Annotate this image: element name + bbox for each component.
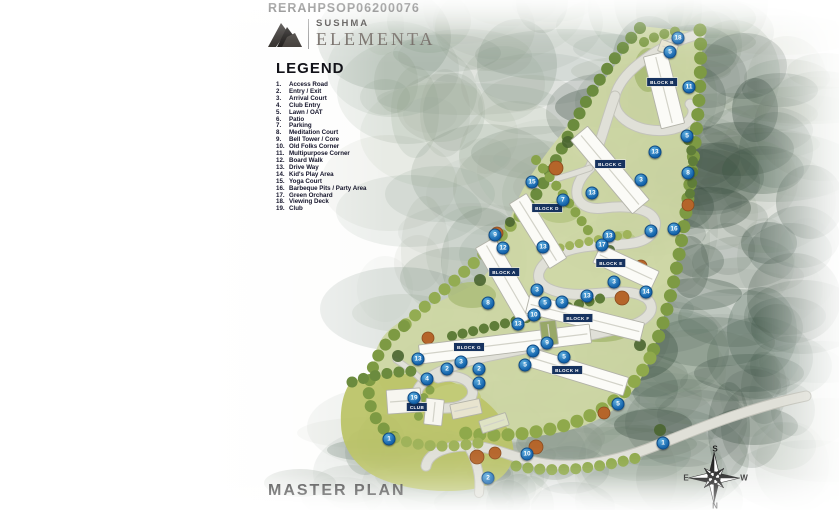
map-marker-5: 5 [539, 297, 552, 310]
block-label: BLOCK F [563, 314, 592, 322]
block-label: BLOCK B [647, 78, 677, 86]
map-marker-14: 14 [639, 286, 652, 299]
map-marker-10: 10 [528, 309, 541, 322]
compass-direction-right: W [740, 474, 748, 483]
map-marker-11: 11 [683, 81, 696, 94]
logo-divider [308, 19, 309, 49]
compass-direction-top: S [712, 445, 717, 454]
map-marker-8: 8 [682, 167, 695, 180]
brand-product-name: ELEMENTA [316, 29, 436, 50]
legend-list: 1.Access Road2.Entry / Exit3.Arrival Cou… [276, 82, 426, 213]
map-marker-13: 13 [581, 290, 594, 303]
mountain-logo-icon [268, 20, 304, 48]
map-marker-2: 2 [473, 363, 486, 376]
map-marker-1: 1 [473, 377, 486, 390]
legend-item: 19.Club [276, 206, 426, 213]
block-label: BLOCK G [454, 343, 484, 351]
map-marker-18: 18 [672, 32, 685, 45]
compass-direction-left: E [683, 474, 688, 483]
block-label: BLOCK C [595, 160, 625, 168]
compass-direction-bottom: N [712, 502, 718, 510]
map-marker-2: 2 [482, 472, 495, 485]
master-plan-page: BLOCK BBLOCK CBLOCK DBLOCK EBLOCK ABLOCK… [0, 0, 839, 510]
map-marker-7: 7 [556, 194, 569, 207]
map-marker-13: 13 [649, 146, 662, 159]
map-marker-9: 9 [644, 225, 657, 238]
block-label: BLOCK H [552, 366, 582, 374]
rera-number: RERAHPSOP06200076 [268, 1, 458, 15]
map-marker-4: 4 [421, 373, 434, 386]
map-marker-13: 13 [536, 241, 549, 254]
map-marker-13: 13 [585, 187, 598, 200]
map-marker-13: 13 [512, 318, 525, 331]
map-marker-9: 9 [489, 229, 502, 242]
map-marker-16: 16 [668, 223, 681, 236]
map-marker-3: 3 [608, 276, 621, 289]
brand-name: SUSHMA [316, 18, 436, 29]
map-marker-19: 19 [408, 392, 421, 405]
map-marker-1: 1 [383, 433, 396, 446]
map-marker-3: 3 [635, 174, 648, 187]
block-label: CLUB [407, 403, 427, 411]
map-marker-5: 5 [664, 46, 677, 59]
compass: S N E W [679, 442, 749, 510]
block-label: BLOCK D [532, 204, 562, 212]
legend: LEGEND 1.Access Road2.Entry / Exit3.Arri… [276, 60, 426, 213]
legend-title: LEGEND [276, 60, 426, 77]
map-marker-3: 3 [556, 296, 569, 309]
map-marker-3: 3 [531, 284, 544, 297]
map-marker-10: 10 [521, 448, 534, 461]
map-marker-5: 5 [519, 359, 532, 372]
map-marker-3: 3 [455, 356, 468, 369]
map-marker-5: 5 [558, 351, 571, 364]
map-marker-5: 5 [612, 398, 625, 411]
header: RERAHPSOP06200076 SUSHMA ELEMENTA [268, 1, 458, 50]
map-marker-8: 8 [482, 297, 495, 310]
map-marker-12: 12 [497, 241, 510, 254]
block-label: BLOCK A [489, 268, 519, 276]
map-marker-1: 1 [657, 437, 670, 450]
map-marker-5: 5 [681, 130, 694, 143]
block-label: BLOCK E [596, 259, 625, 267]
map-marker-2: 2 [441, 363, 454, 376]
master-plan-title: MASTER PLAN [268, 482, 406, 500]
map-marker-17: 17 [595, 239, 608, 252]
map-marker-13: 13 [412, 353, 425, 366]
map-marker-9: 9 [541, 337, 554, 350]
map-marker-6: 6 [527, 345, 540, 358]
brand-logo: SUSHMA ELEMENTA [268, 18, 458, 50]
map-marker-15: 15 [526, 176, 539, 189]
